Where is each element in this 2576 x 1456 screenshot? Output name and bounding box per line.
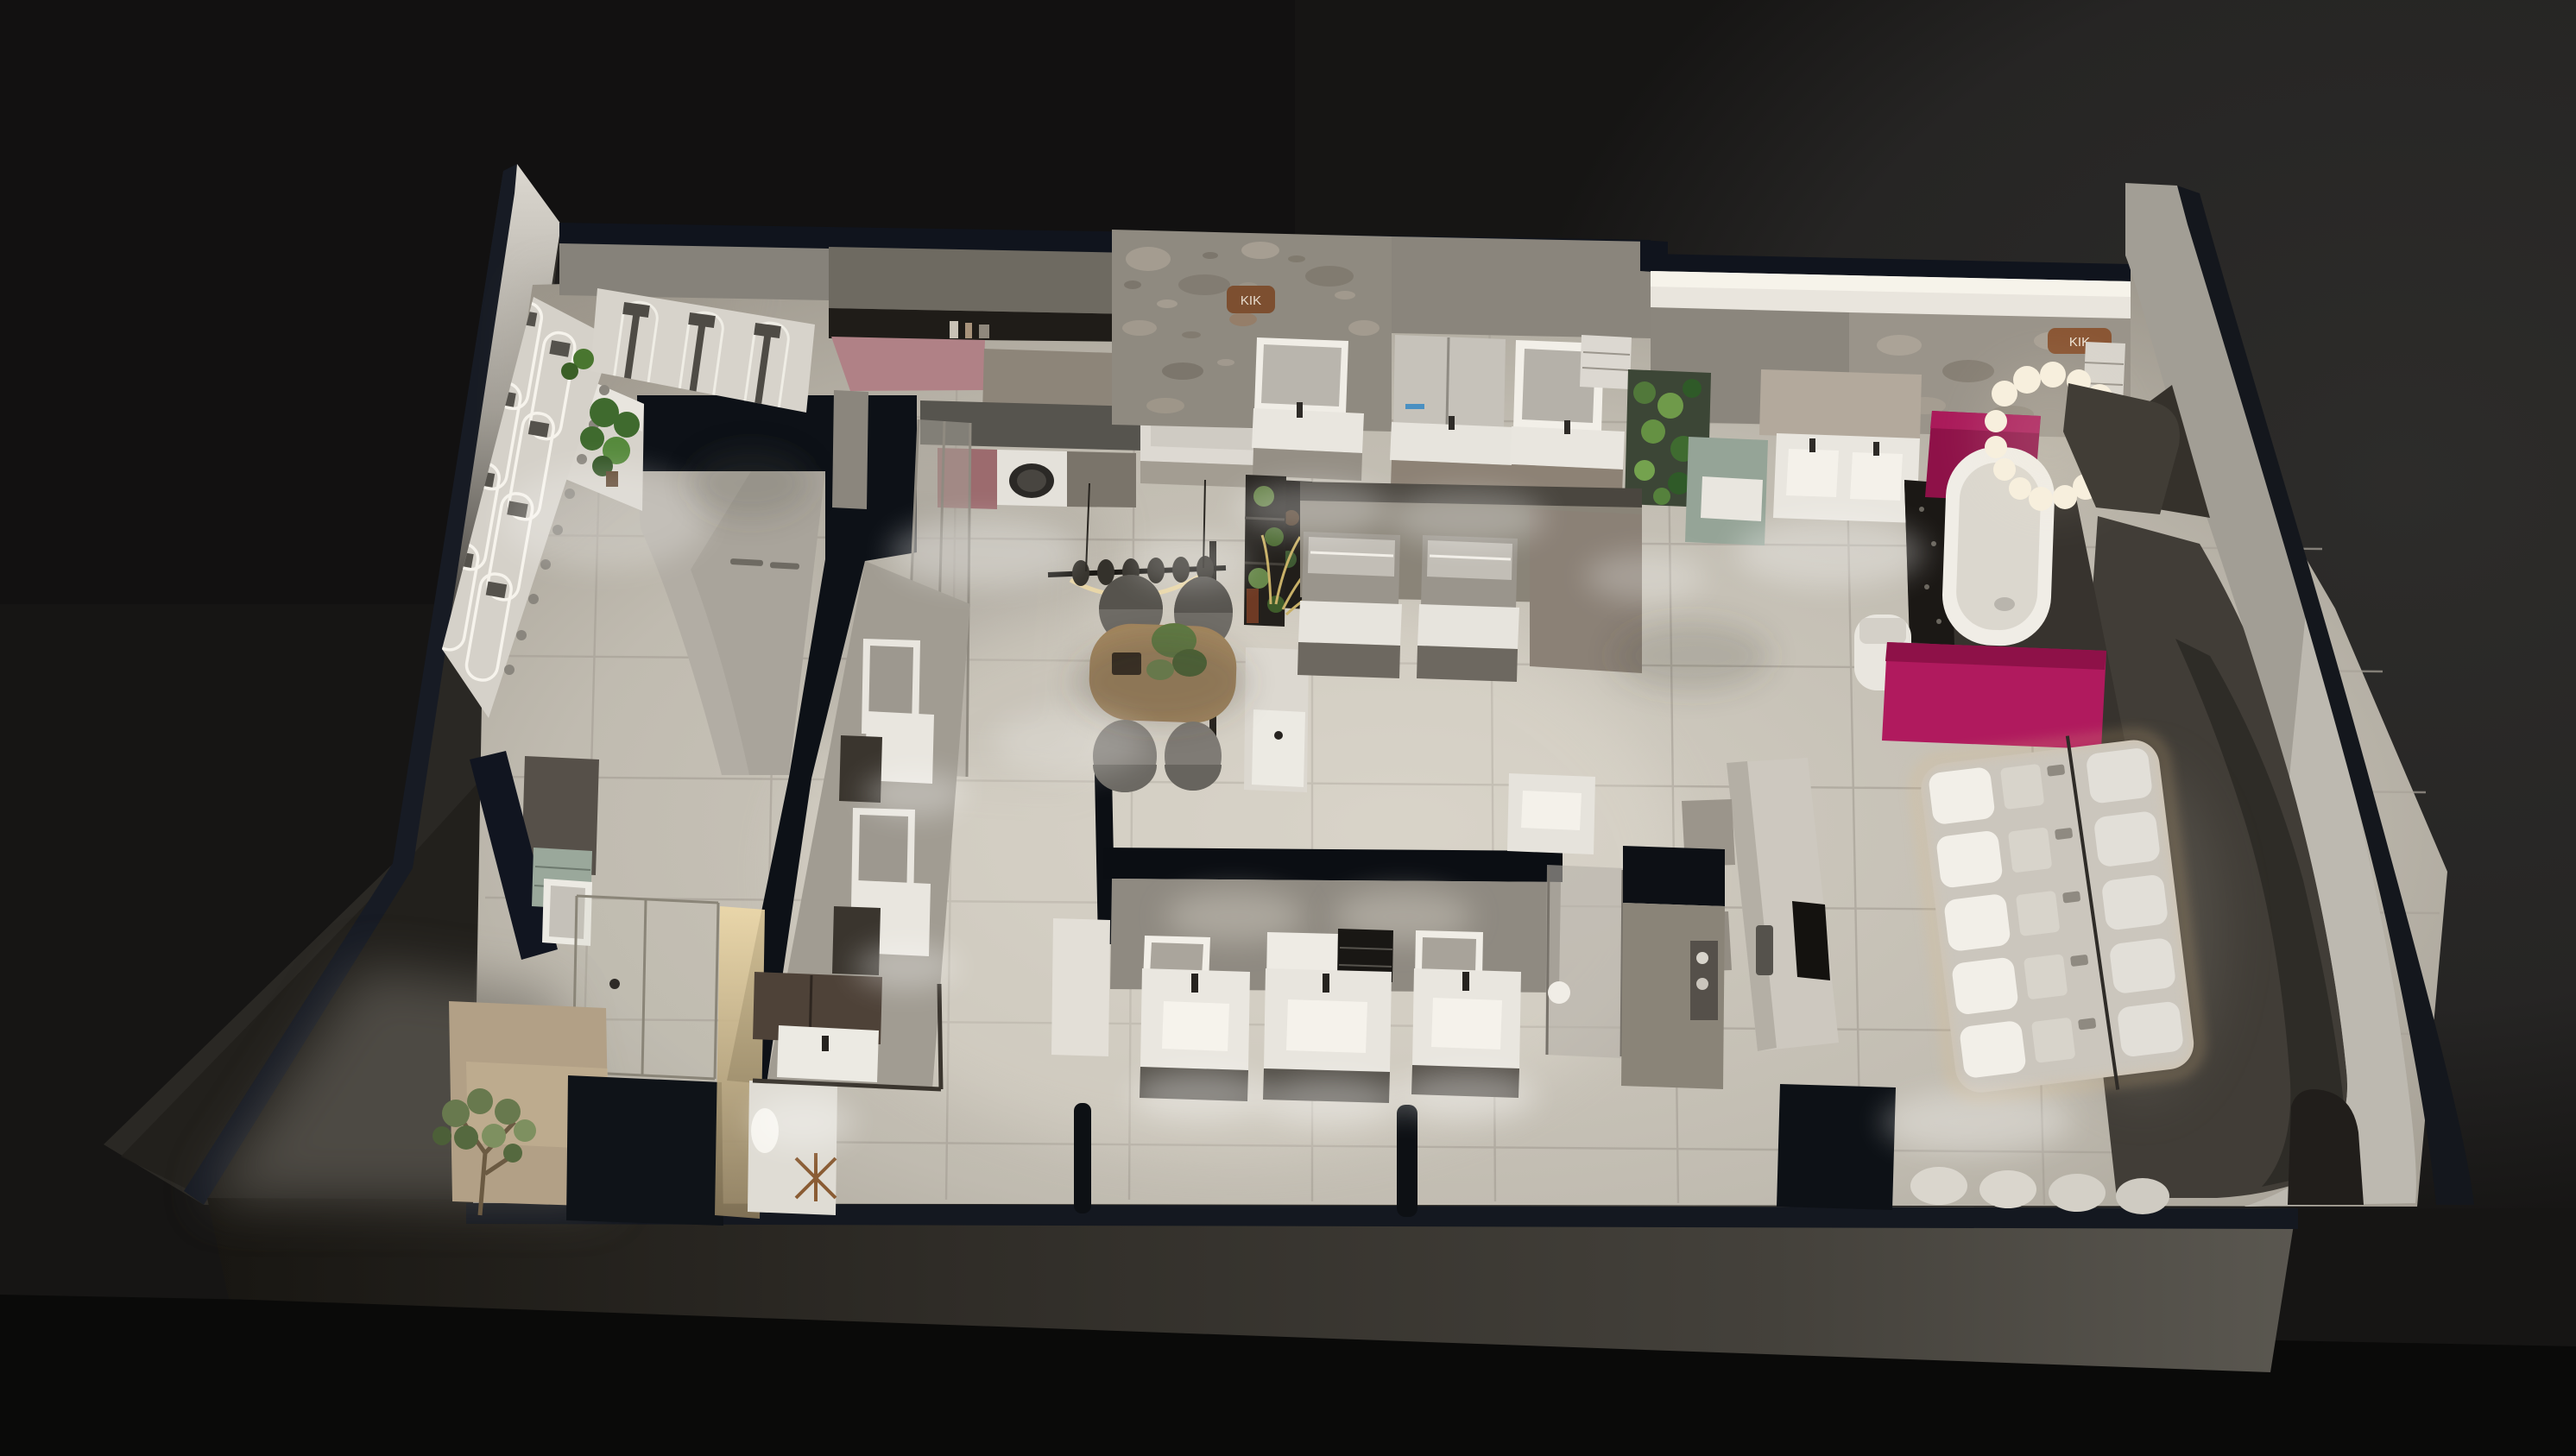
svg-text:KIK: KIK — [1241, 293, 1261, 308]
